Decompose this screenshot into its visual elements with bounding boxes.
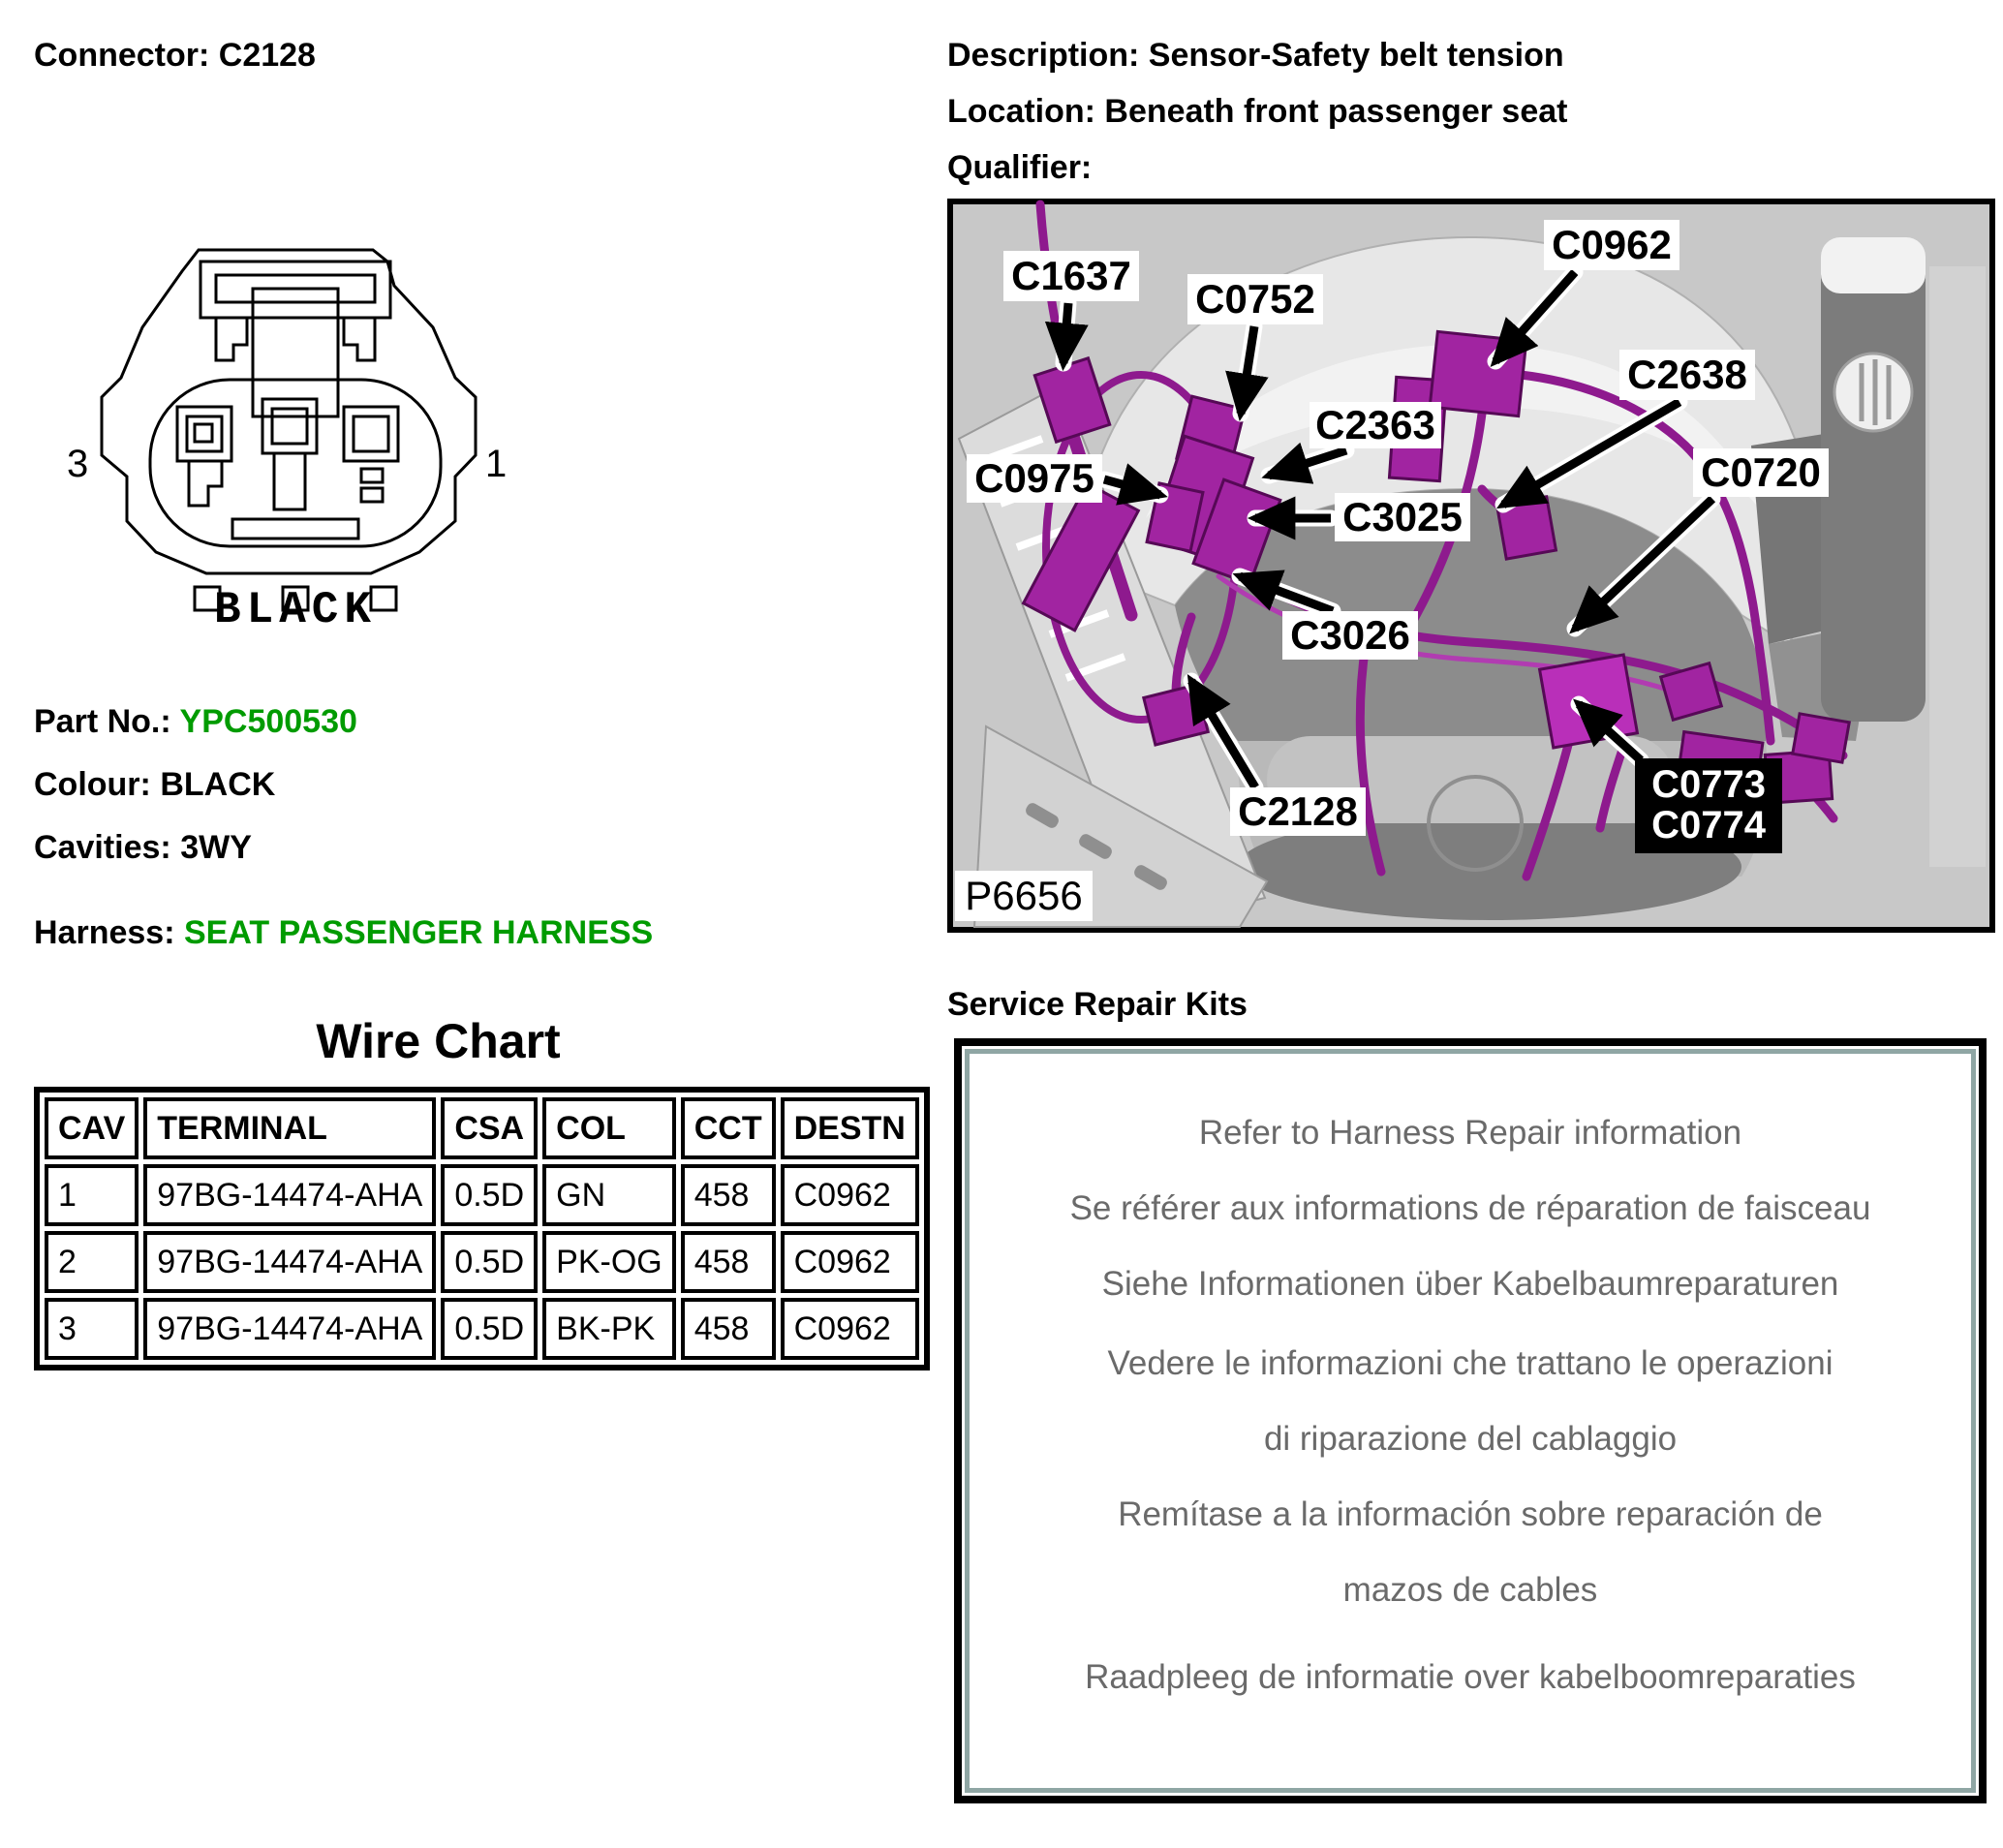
svg-text:C1637: C1637 bbox=[1011, 253, 1131, 298]
svg-text:P6656: P6656 bbox=[965, 873, 1082, 918]
repair-line-nl: Raadpleeg de informatie over kabelboomre… bbox=[970, 1658, 1971, 1697]
colour-line: Colour: BLACK bbox=[34, 766, 275, 804]
svg-text:C0720: C0720 bbox=[1701, 449, 1821, 495]
wire-row-3: 3 97BG-14474-AHA 0.5D BK-PK 458 C0962 bbox=[45, 1298, 919, 1360]
service-repair-box-inner: Refer to Harness Repair information Se r… bbox=[965, 1049, 1976, 1793]
cell-csa: 0.5D bbox=[441, 1164, 538, 1226]
repair-line-it-2: di riparazione del cablaggio bbox=[970, 1420, 1971, 1459]
colour-label: Colour: bbox=[34, 766, 151, 803]
col-header-csa: CSA bbox=[441, 1097, 538, 1159]
cavities-label: Cavities: bbox=[34, 829, 171, 866]
cavities-value: 3WY bbox=[180, 829, 252, 866]
pin-3-label: 3 bbox=[67, 443, 88, 485]
cell-cav: 1 bbox=[45, 1164, 139, 1226]
cell-col: PK-OG bbox=[542, 1231, 676, 1293]
colour-value: BLACK bbox=[160, 766, 275, 803]
cavities-line: Cavities: 3WY bbox=[34, 829, 252, 867]
cell-cav: 3 bbox=[45, 1298, 139, 1360]
location-line: Location: Beneath front passenger seat bbox=[947, 93, 1567, 131]
svg-text:C2363: C2363 bbox=[1315, 402, 1435, 447]
cell-csa: 0.5D bbox=[441, 1298, 538, 1360]
connector-face-figure: 3 1 BLACK bbox=[53, 232, 518, 630]
figure-id-label: P6656 bbox=[955, 871, 1093, 921]
cell-terminal: 97BG-14474-AHA bbox=[143, 1231, 436, 1293]
col-header-destn: DESTN bbox=[781, 1097, 919, 1159]
wire-row-2: 2 97BG-14474-AHA 0.5D PK-OG 458 C0962 bbox=[45, 1231, 919, 1293]
harness-label: Harness: bbox=[34, 914, 175, 951]
cell-cav: 2 bbox=[45, 1231, 139, 1293]
cell-cct: 458 bbox=[681, 1164, 776, 1226]
part-no-value: YPC500530 bbox=[180, 703, 357, 740]
location-photo-figure: C1637 C0752 C0962 C2638 C2363 bbox=[947, 199, 1995, 933]
cell-destn: C0962 bbox=[781, 1298, 919, 1360]
col-header-cct: CCT bbox=[681, 1097, 776, 1159]
col-header-cav: CAV bbox=[45, 1097, 139, 1159]
part-no-line: Part No.: YPC500530 bbox=[34, 703, 357, 741]
part-no-label: Part No.: bbox=[34, 703, 171, 740]
harness-value: SEAT PASSENGER HARNESS bbox=[184, 914, 653, 951]
svg-text:C0962: C0962 bbox=[1552, 222, 1672, 267]
connector-reference-page: Connector: C2128 Description: Sensor-Saf… bbox=[0, 0, 2003, 1848]
cell-col: BK-PK bbox=[542, 1298, 676, 1360]
repair-line-es-2: mazos de cables bbox=[970, 1571, 1971, 1610]
cell-csa: 0.5D bbox=[441, 1231, 538, 1293]
svg-text:C0975: C0975 bbox=[974, 455, 1094, 501]
repair-line-fr: Se référer aux informations de réparatio… bbox=[970, 1189, 1971, 1228]
connector-outline bbox=[102, 250, 476, 573]
connector-colour-caption: BLACK bbox=[214, 585, 377, 630]
cell-destn: C0962 bbox=[781, 1231, 919, 1293]
repair-line-de: Siehe Informationen über Kabelbaumrepara… bbox=[970, 1265, 1971, 1304]
repair-line-it-1: Vedere le informazioni che trattano le o… bbox=[970, 1344, 1971, 1383]
svg-text:C0773: C0773 bbox=[1651, 763, 1766, 806]
cell-destn: C0962 bbox=[781, 1164, 919, 1226]
connector-title: Connector: C2128 bbox=[34, 37, 316, 75]
svg-text:C2128: C2128 bbox=[1238, 788, 1358, 834]
col-header-col: COL bbox=[542, 1097, 676, 1159]
service-repair-box: Refer to Harness Repair information Se r… bbox=[954, 1038, 1987, 1803]
wire-chart-table: CAV TERMINAL CSA COL CCT DESTN 1 97BG-14… bbox=[34, 1087, 930, 1371]
repair-line-en: Refer to Harness Repair information bbox=[970, 1114, 1971, 1153]
svg-text:C3025: C3025 bbox=[1342, 494, 1463, 539]
qualifier-line: Qualifier: bbox=[947, 149, 1092, 187]
repair-line-es-1: Remítase a la información sobre reparaci… bbox=[970, 1495, 1971, 1534]
svg-text:C2638: C2638 bbox=[1627, 352, 1747, 397]
col-header-terminal: TERMINAL bbox=[143, 1097, 436, 1159]
wire-row-1: 1 97BG-14474-AHA 0.5D GN 458 C0962 bbox=[45, 1164, 919, 1226]
cell-terminal: 97BG-14474-AHA bbox=[143, 1164, 436, 1226]
cell-cct: 458 bbox=[681, 1298, 776, 1360]
wire-chart-header-row: CAV TERMINAL CSA COL CCT DESTN bbox=[45, 1097, 919, 1159]
connector-face-drawing: 3 1 BLACK bbox=[53, 232, 518, 630]
wire-chart-title: Wire Chart bbox=[34, 1013, 843, 1069]
cell-col: GN bbox=[542, 1164, 676, 1226]
pin-1-label: 1 bbox=[485, 443, 507, 485]
cell-terminal: 97BG-14474-AHA bbox=[143, 1298, 436, 1360]
svg-text:C3026: C3026 bbox=[1290, 612, 1410, 658]
seat-harness-illustration: C1637 C0752 C0962 C2638 C2363 bbox=[947, 199, 1995, 933]
cell-cct: 458 bbox=[681, 1231, 776, 1293]
service-repair-heading: Service Repair Kits bbox=[947, 986, 1248, 1024]
harness-line: Harness: SEAT PASSENGER HARNESS bbox=[34, 914, 653, 952]
svg-text:C0774: C0774 bbox=[1651, 804, 1767, 847]
description-line: Description: Sensor-Safety belt tension bbox=[947, 37, 1564, 75]
svg-text:C0752: C0752 bbox=[1195, 276, 1315, 322]
